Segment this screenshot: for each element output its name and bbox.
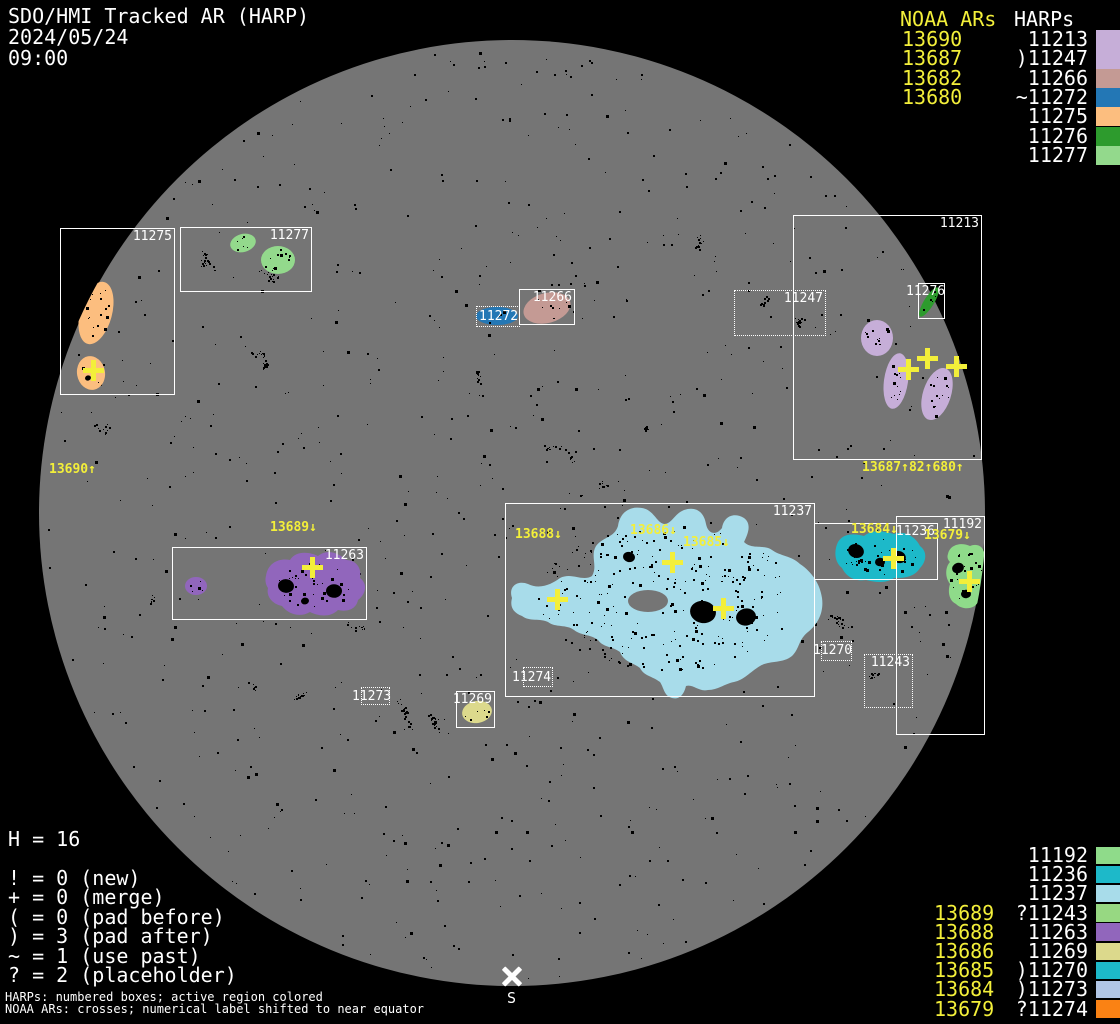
noaa-cross-9 [959,571,980,592]
br-swatch-11270 [1096,962,1120,980]
time-label: 09:00 [8,48,309,69]
harp-box-label-11237: 11237 [773,505,812,518]
harp-box-11243: 11243 [864,654,913,708]
symbol-legend-line-5: ? = 2 (placeholder) [8,965,237,985]
tr-noaa-13680: 13680 [902,88,962,107]
harps-header: HARPs [1014,9,1074,29]
tr-swatch-11276 [1096,127,1120,146]
harp-box-label-11243: 11243 [871,656,910,669]
noaa-disk-label-1: 13687↑82↑680↑ [862,461,964,475]
harp-box-11263: 11263 [172,547,367,620]
noaa-disk-label-0: 13690↑ [49,463,96,477]
noaa-cross-6 [662,552,683,573]
noaa-disk-label-6: 13684↓ [851,523,898,537]
br-swatch-11236 [1096,866,1120,884]
noaa-note: NOAA ARs: crosses; numerical label shift… [5,1003,424,1015]
noaa-cross-5 [547,589,568,610]
harp-box-11269: 11269 [456,691,495,728]
harp-box-11213: 11213 [793,215,982,460]
tr-swatch-11247 [1096,49,1120,68]
harp-count-label: H = 16 [8,829,80,849]
harp-box-label-11275: 11275 [133,230,172,243]
tr-swatch-11213 [1096,30,1120,49]
noaa-disk-label-7: 13679↓ [924,529,971,543]
harp-box-label-11274: 11274 [512,671,551,684]
page-title: SDO/HMI Tracked AR (HARP) [8,6,309,27]
harp-box-label-11270: 11270 [813,644,852,657]
harp-box-label-11273: 11273 [352,690,391,703]
date-label: 2024/05/24 [8,27,309,48]
noaa-cross-2 [917,348,938,369]
harp-box-label-11213: 11213 [940,217,979,230]
sdo-harp-visualization: 1127511277112661127211247112131127611263… [0,0,1120,1024]
noaa-disk-label-2: 13689↓ [270,521,317,535]
tr-swatch-11275 [1096,107,1120,126]
br-swatch-11237 [1096,885,1120,903]
noaa-cross-1 [898,359,919,380]
br-swatch-11263 [1096,923,1120,941]
tr-harp-11277: 11277 [996,146,1088,165]
harp-box-label-11266: 11266 [533,291,572,304]
br-swatch-11273 [1096,981,1120,999]
noaa-disk-label-5: 13685↓ [683,536,730,550]
br-swatch-11243 [1096,904,1120,922]
noaa-cross-7 [713,598,734,619]
br-harp-11274: ?11274 [996,1000,1088,1019]
south-label: S [507,989,516,1007]
noaa-disk-label-3: 13688↓ [515,528,562,542]
tr-swatch-11277 [1096,146,1120,165]
br-swatch-11269 [1096,943,1120,961]
harp-box-label-11263: 11263 [325,549,364,562]
harp-box-11275: 11275 [60,228,175,395]
tr-swatch-11266 [1096,69,1120,88]
br-noaa-13679: 13679 [934,1000,994,1019]
harp-box-label-11272: 11272 [479,310,518,323]
noaa-cross-0 [83,360,104,381]
noaa-cross-3 [946,356,967,377]
noaa-ars-header: NOAA ARs [900,9,996,29]
harp-box-label-11269: 11269 [453,693,492,706]
harp-box-11277: 11277 [180,227,312,292]
title-block: SDO/HMI Tracked AR (HARP) 2024/05/24 09:… [8,6,309,69]
noaa-disk-label-4: 13686↓ [630,524,677,538]
harp-box-label-11277: 11277 [270,229,309,242]
harp-box-label-11276: 11276 [906,285,945,298]
harp-box-11266: 11266 [519,289,575,325]
br-swatch-11274 [1096,1000,1120,1018]
tr-swatch-11272 [1096,88,1120,107]
noaa-cross-4 [302,557,323,578]
noaa-cross-8 [883,548,904,569]
br-swatch-11192 [1096,847,1120,865]
